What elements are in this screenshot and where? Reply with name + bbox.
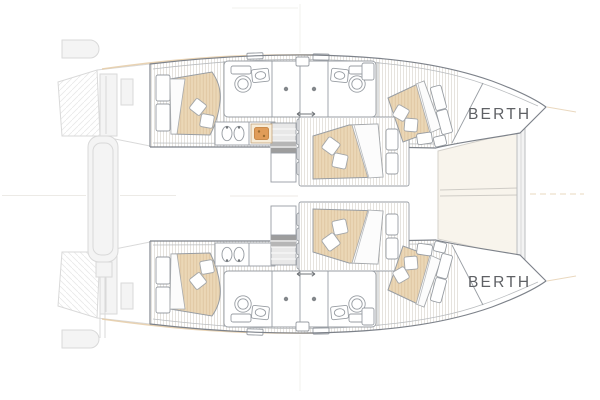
washbasin-icon — [251, 68, 269, 83]
deck-hatch — [296, 57, 309, 66]
berth-label-lower: BERTH — [468, 274, 531, 291]
pillow — [404, 118, 418, 132]
davit-post — [121, 79, 133, 105]
burner-dot — [263, 135, 265, 137]
transom-steps — [58, 40, 150, 146]
stove-icon — [255, 128, 269, 140]
catamaran-floorplan: BERTH BERTH — [0, 0, 600, 400]
aft-cabin-seat — [156, 75, 170, 101]
trampoline — [438, 131, 519, 257]
washbasin-icon — [330, 68, 348, 83]
pillow — [332, 153, 349, 170]
toilet-icon — [235, 76, 251, 92]
faucet-dot — [238, 126, 240, 128]
stove-unit — [251, 124, 272, 143]
bow-line — [547, 276, 576, 281]
davit-pad — [62, 40, 99, 58]
stair-tread-dark — [271, 148, 296, 153]
berth-label-upper: BERTH — [468, 106, 531, 123]
bow-line — [547, 107, 576, 112]
shower-drain — [284, 87, 288, 91]
aft-cabin-seat — [156, 104, 170, 131]
toilet-tank — [231, 66, 251, 74]
pillow — [199, 113, 214, 128]
faucet-dot — [226, 126, 228, 128]
aft-deck-faint — [58, 40, 150, 348]
burner-dot — [258, 130, 260, 132]
mid-cabin-seat — [386, 153, 398, 174]
shower-drain — [312, 87, 316, 91]
mid-cabin — [299, 117, 409, 186]
bathrooms — [224, 53, 376, 117]
mid-cabin-seat — [386, 129, 398, 150]
transom-step — [100, 74, 117, 136]
forward-cabin-seat — [416, 132, 432, 145]
boarding-box — [96, 262, 112, 277]
swim-step-hatch — [58, 70, 100, 136]
head-cabinet — [362, 63, 374, 80]
stair-landing — [271, 153, 296, 182]
